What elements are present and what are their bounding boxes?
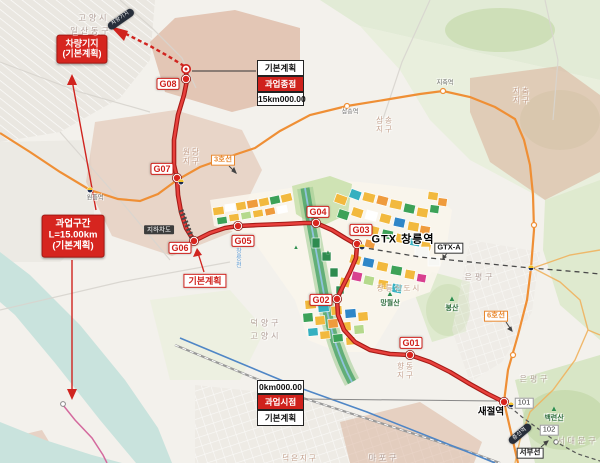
urban-grid-west xyxy=(0,140,95,262)
mountain-area-east xyxy=(543,180,600,340)
urban-grid-yeonsinnae xyxy=(452,240,540,382)
basemap-graphics xyxy=(0,0,600,463)
planning-map: 차량기지 (기본계획) 과업구간 L=15.00km (기본계획) 기본계획 과… xyxy=(0,0,600,463)
zone-area-g08 xyxy=(150,10,300,112)
zone-area-jichuk xyxy=(470,66,600,200)
